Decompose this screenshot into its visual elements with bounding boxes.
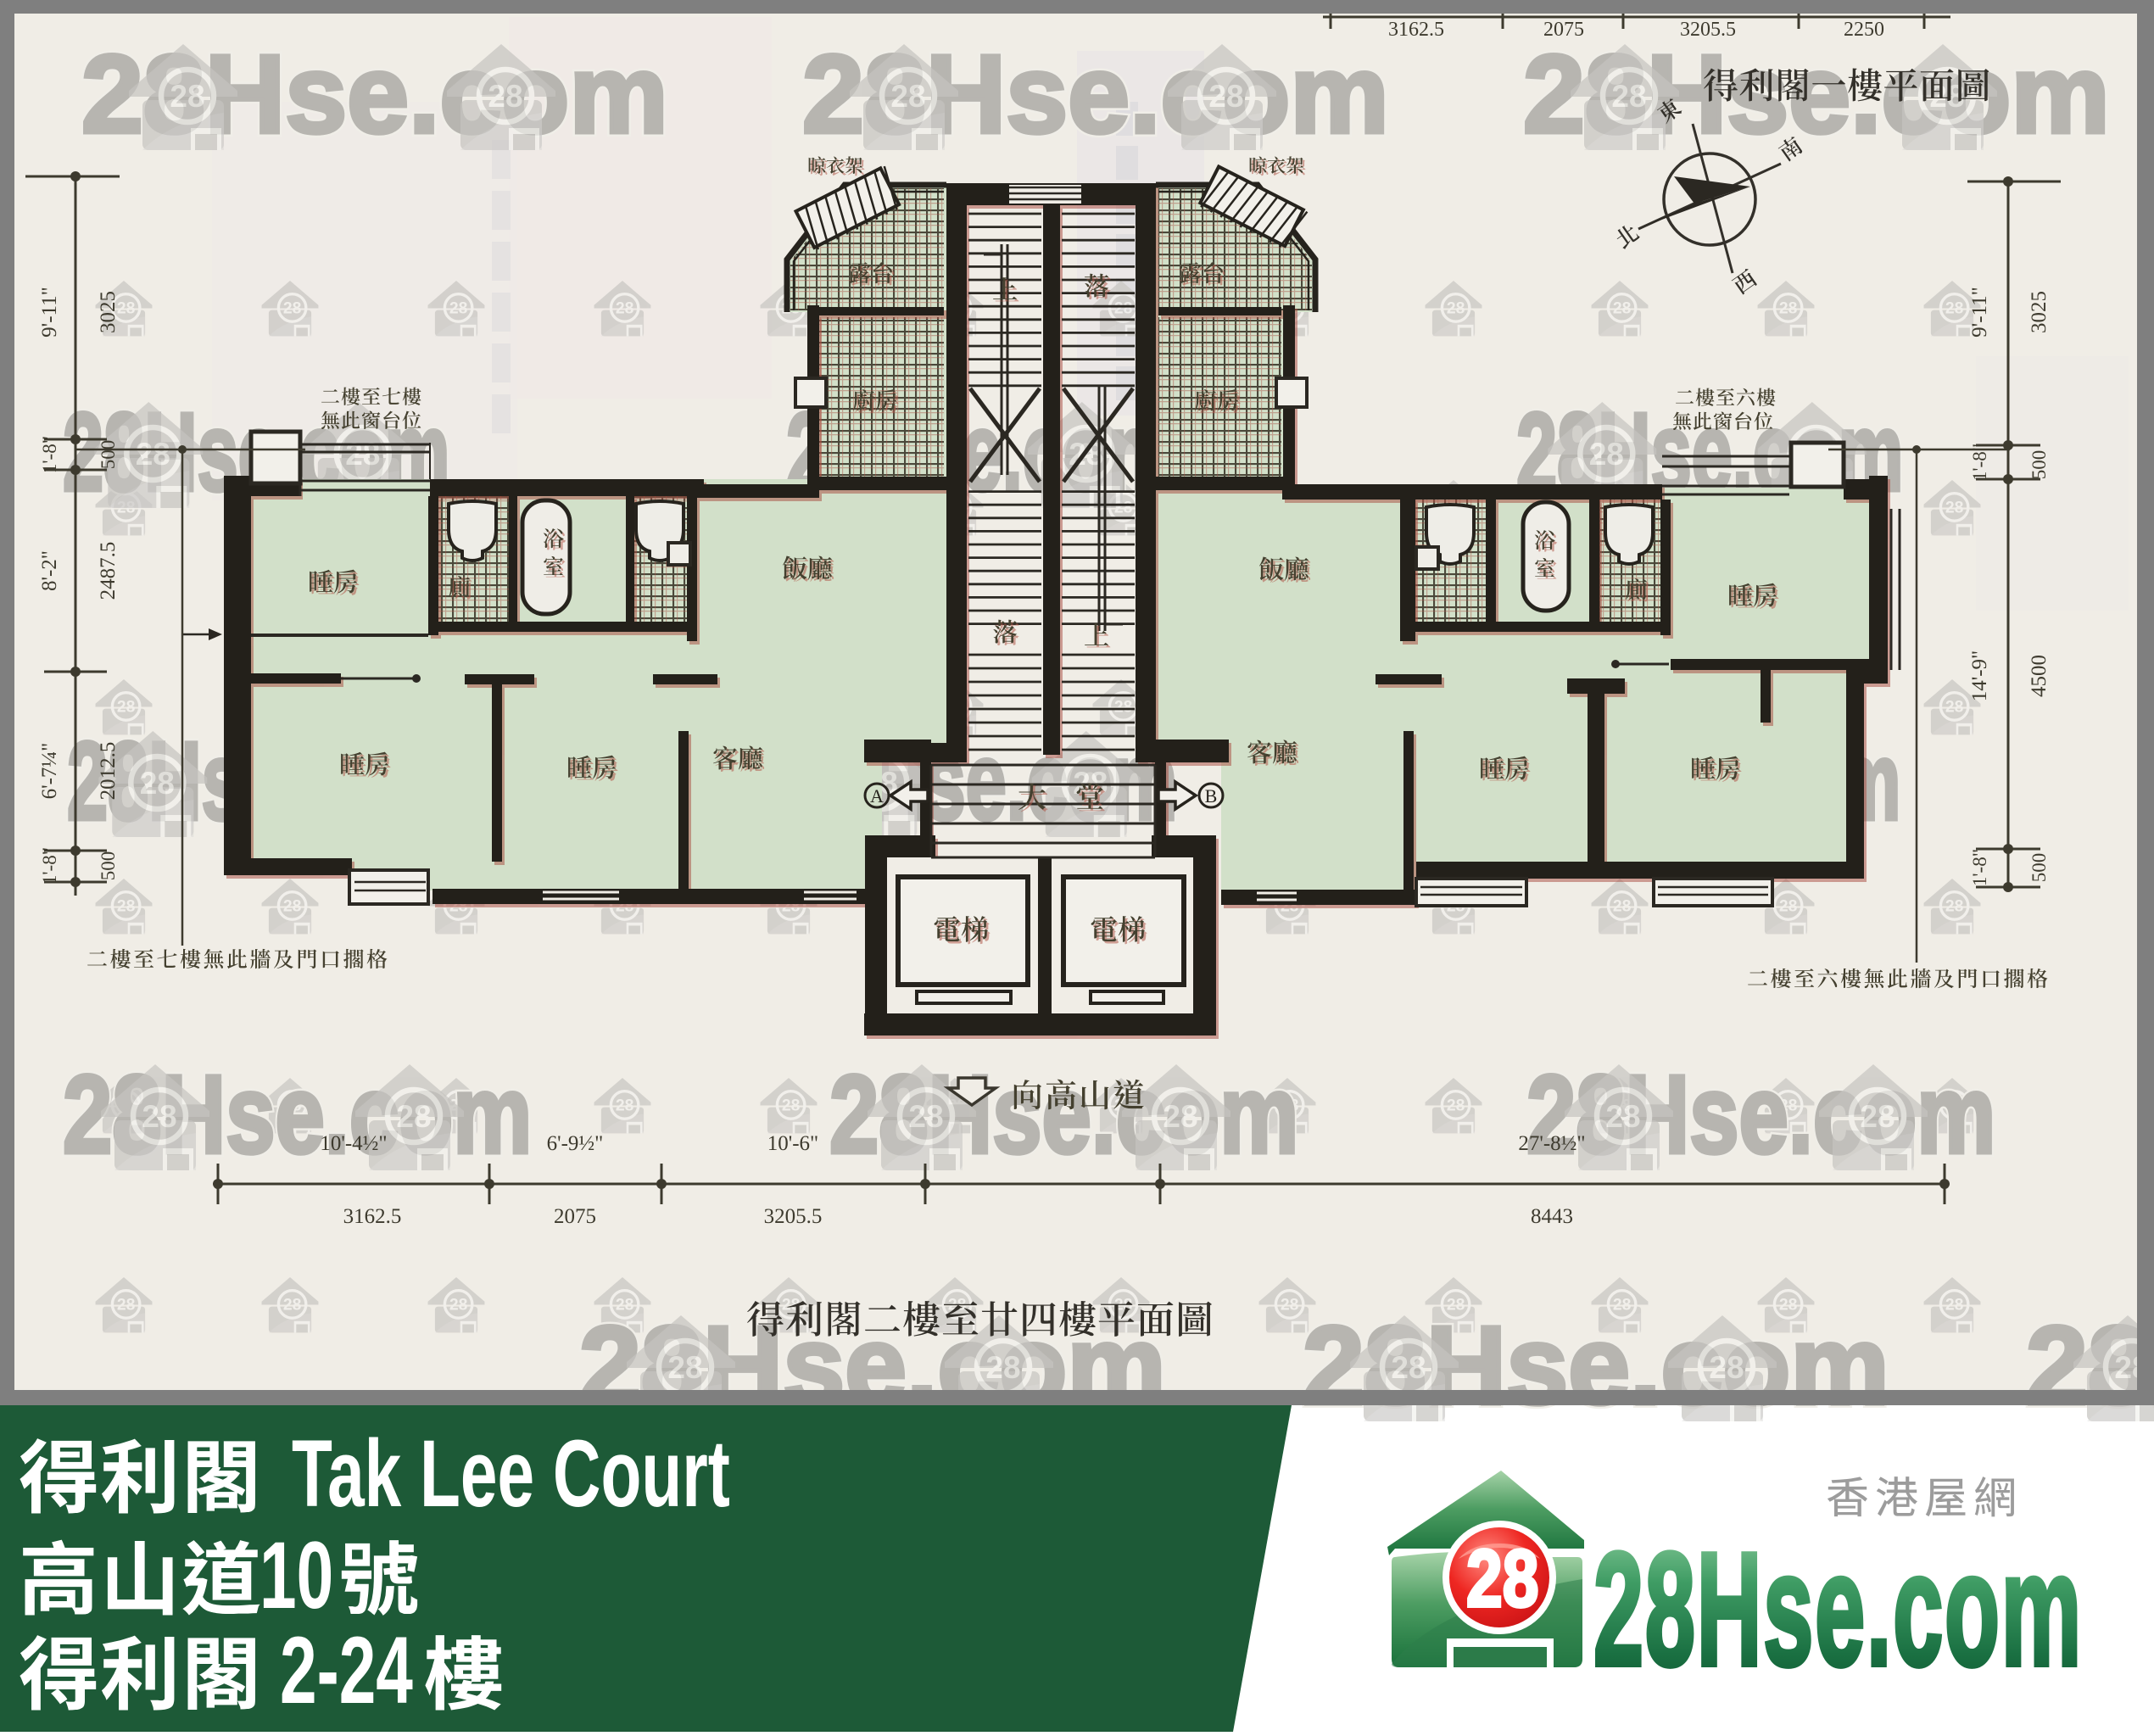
svg-text:2012.5: 2012.5	[97, 742, 120, 801]
svg-text:10'-6": 10'-6"	[767, 1132, 819, 1155]
svg-text:1'-8": 1'-8"	[39, 436, 60, 473]
svg-text:3025: 3025	[2028, 291, 2051, 333]
svg-text:2075: 2075	[1543, 19, 1584, 41]
svg-text:1'-8": 1'-8"	[1969, 849, 1990, 886]
svg-text:14'-9": 14'-9"	[1968, 650, 1991, 702]
svg-text:3162.5: 3162.5	[1388, 19, 1444, 41]
svg-text:1'-8": 1'-8"	[39, 847, 60, 885]
svg-text:10: 10	[259, 1522, 333, 1628]
svg-text:9'-11": 9'-11"	[1968, 287, 1991, 338]
svg-text:500: 500	[2028, 853, 2050, 883]
svg-text:3162.5: 3162.5	[343, 1205, 402, 1228]
svg-text:2250: 2250	[1844, 19, 1884, 41]
svg-text:500: 500	[98, 440, 119, 470]
svg-text:9'-11": 9'-11"	[38, 287, 61, 338]
svg-text:3025: 3025	[97, 291, 120, 333]
svg-text:28Hse.com: 28Hse.com	[1593, 1519, 2083, 1699]
svg-text:4500: 4500	[2028, 655, 2051, 697]
svg-text:2075: 2075	[554, 1205, 596, 1228]
svg-text:27'-8½": 27'-8½"	[1518, 1132, 1585, 1155]
svg-text:2487.5: 2487.5	[97, 542, 120, 600]
svg-text:500: 500	[2028, 450, 2050, 480]
svg-text:6'-7¼": 6'-7¼"	[38, 743, 61, 800]
svg-text:10'-4½": 10'-4½"	[320, 1132, 387, 1155]
svg-text:2-24: 2-24	[280, 1617, 413, 1723]
svg-text:8'-2": 8'-2"	[38, 550, 61, 591]
svg-text:3205.5: 3205.5	[1680, 19, 1736, 41]
svg-text:B: B	[1205, 785, 1218, 807]
svg-text:A: A	[870, 785, 884, 807]
svg-text:3205.5: 3205.5	[764, 1205, 823, 1228]
svg-text:500: 500	[98, 851, 119, 881]
svg-text:Tak Lee Court: Tak Lee Court	[292, 1421, 730, 1527]
svg-text:28: 28	[1466, 1533, 1538, 1624]
svg-text:6'-9½": 6'-9½"	[547, 1132, 604, 1155]
svg-text:8443: 8443	[1531, 1205, 1573, 1228]
